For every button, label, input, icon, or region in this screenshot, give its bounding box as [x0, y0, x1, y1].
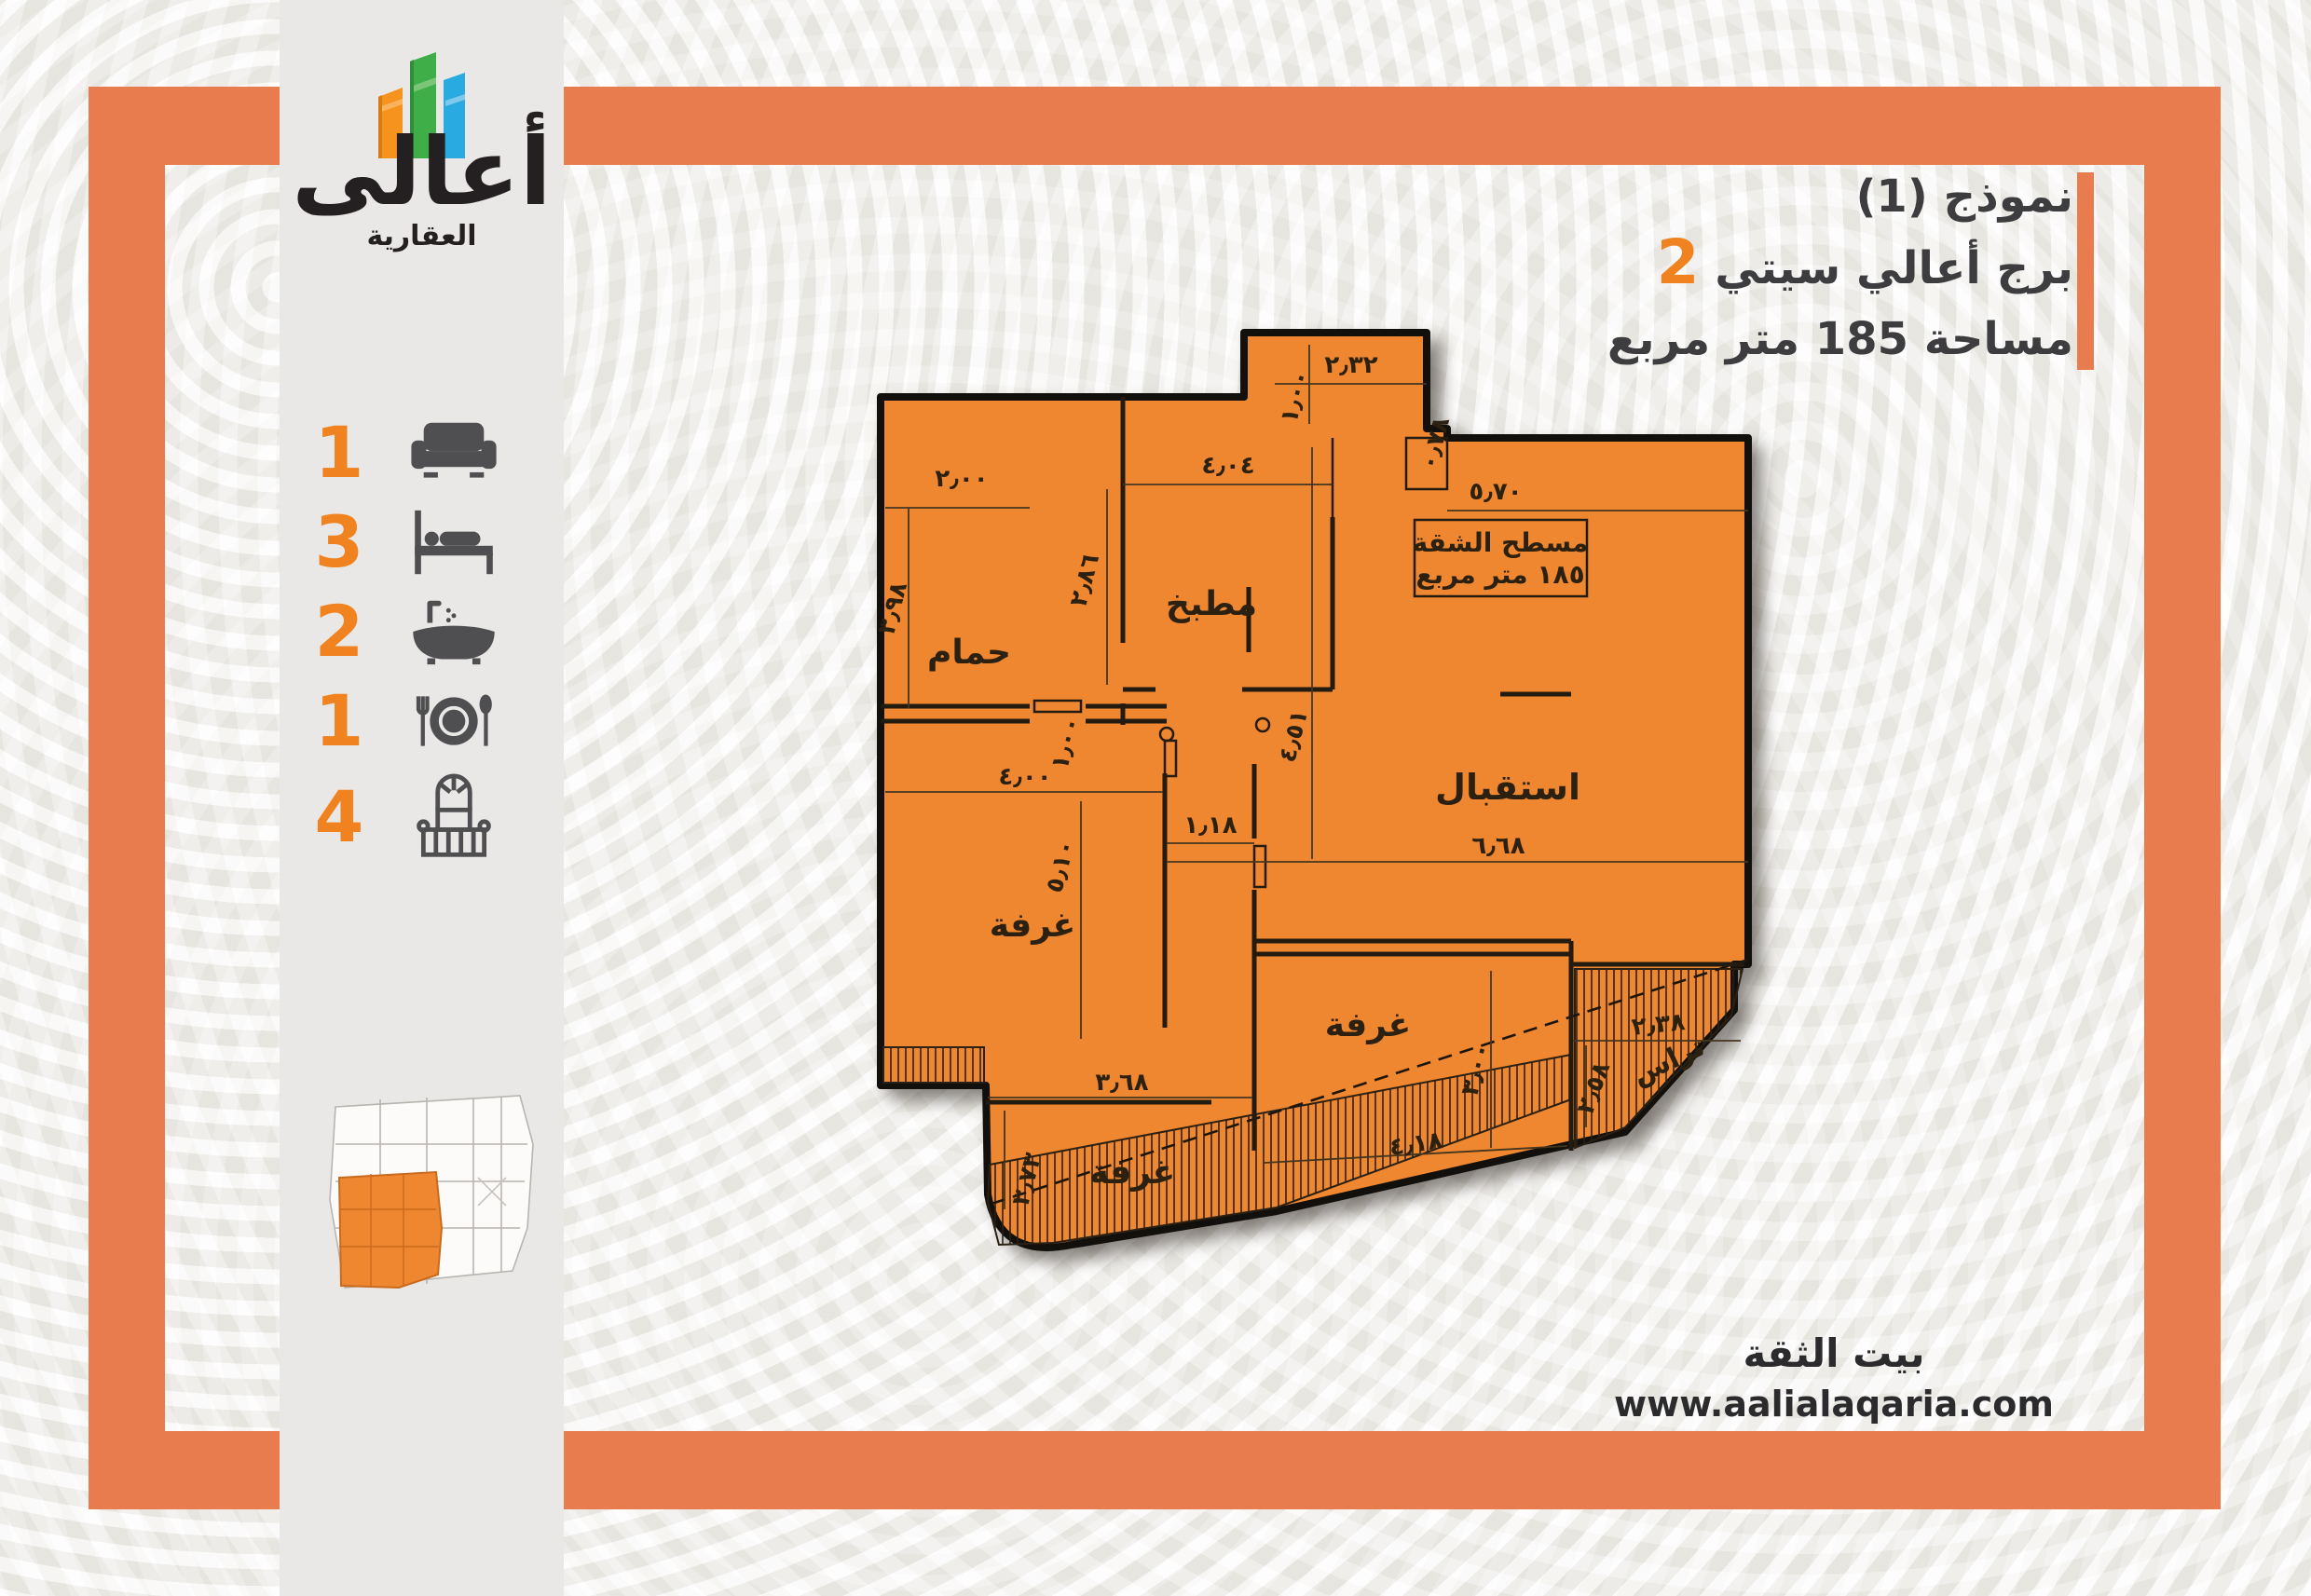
room-label-reception: استقبال [1435, 767, 1580, 808]
bathtub-icon [403, 596, 505, 667]
bathrooms-count: 2 [300, 593, 378, 671]
area-title: مساحة 185 متر مربع [1365, 304, 2073, 375]
amenity-dining: 1 [300, 676, 552, 766]
bed-icon [403, 507, 505, 578]
dim-1-18: ١٫١٨ [1183, 812, 1237, 839]
living-count: 1 [300, 414, 378, 492]
amenity-bedrooms: 3 [300, 498, 552, 587]
balcony-icon [403, 772, 505, 862]
frame-left [89, 87, 165, 1509]
amenity-living: 1 [300, 408, 552, 498]
footer-website: www.aalialaqaria.com [1601, 1384, 2067, 1425]
dim-3-68: ٣٫٦٨ [1095, 1069, 1148, 1097]
project-number: 2 [1657, 226, 1700, 298]
project-name: برج أعالي سيتي [1715, 242, 2073, 294]
brand-logo: أعالى العقارية [280, 48, 564, 252]
balconies-count: 4 [300, 778, 378, 856]
logo-name: أعالى [280, 130, 564, 214]
model-title: نموذج (1) [1365, 166, 2073, 227]
amenities-list: 1 3 [300, 408, 552, 868]
dim-2-38: ٢٫٣٨ [1631, 1008, 1687, 1042]
dining-icon [403, 686, 505, 757]
dining-count: 1 [300, 682, 378, 760]
amenity-balconies: 4 [300, 766, 552, 868]
dim-4-04: ٤٫٠٤ [1201, 452, 1254, 480]
area-box-line2: ١٨٥ متر مربع [1415, 559, 1584, 590]
dim-4-00: ٤٫٠٠ [998, 763, 1051, 791]
room-label-bedroom-middle: غرفة [1325, 1006, 1411, 1044]
room-label-kitchen: مطبخ [1166, 585, 1257, 623]
room-label-bedroom-bottom: غرفة [1089, 1153, 1175, 1192]
footer: بيت الثقة www.aalialaqaria.com [1601, 1330, 2067, 1425]
dim-5-70: ٥٫٧٠ [1469, 478, 1522, 506]
headline-accent-bar [2077, 172, 2094, 370]
project-title: برج أعالي سيتي 2 [1365, 227, 2073, 304]
floor-plan: مسطح الشقة ١٨٥ متر مربع حمام مطبخ استقبا… [867, 317, 1761, 1271]
room-label-bathroom: حمام [927, 634, 1011, 672]
dim-6-68: ٦٫٦٨ [1471, 832, 1525, 860]
dim-2-00: ٢٫٠٠ [935, 465, 988, 493]
frame-right [2144, 87, 2221, 1509]
balcony-strip-left [883, 1047, 984, 1083]
sofa-icon [403, 417, 505, 488]
headline: نموذج (1) برج أعالي سيتي 2 مساحة 185 متر… [1365, 166, 2073, 375]
sidebar-band: أعالى العقارية 1 3 [280, 0, 564, 1596]
amenity-bathrooms: 2 [300, 587, 552, 676]
bedrooms-count: 3 [300, 503, 378, 581]
room-label-bedroom-left: غرفة [990, 907, 1075, 945]
area-box-line1: مسطح الشقة [1413, 527, 1589, 558]
building-thumbnail [287, 1088, 557, 1335]
footer-slogan: بيت الثقة [1601, 1330, 2067, 1376]
